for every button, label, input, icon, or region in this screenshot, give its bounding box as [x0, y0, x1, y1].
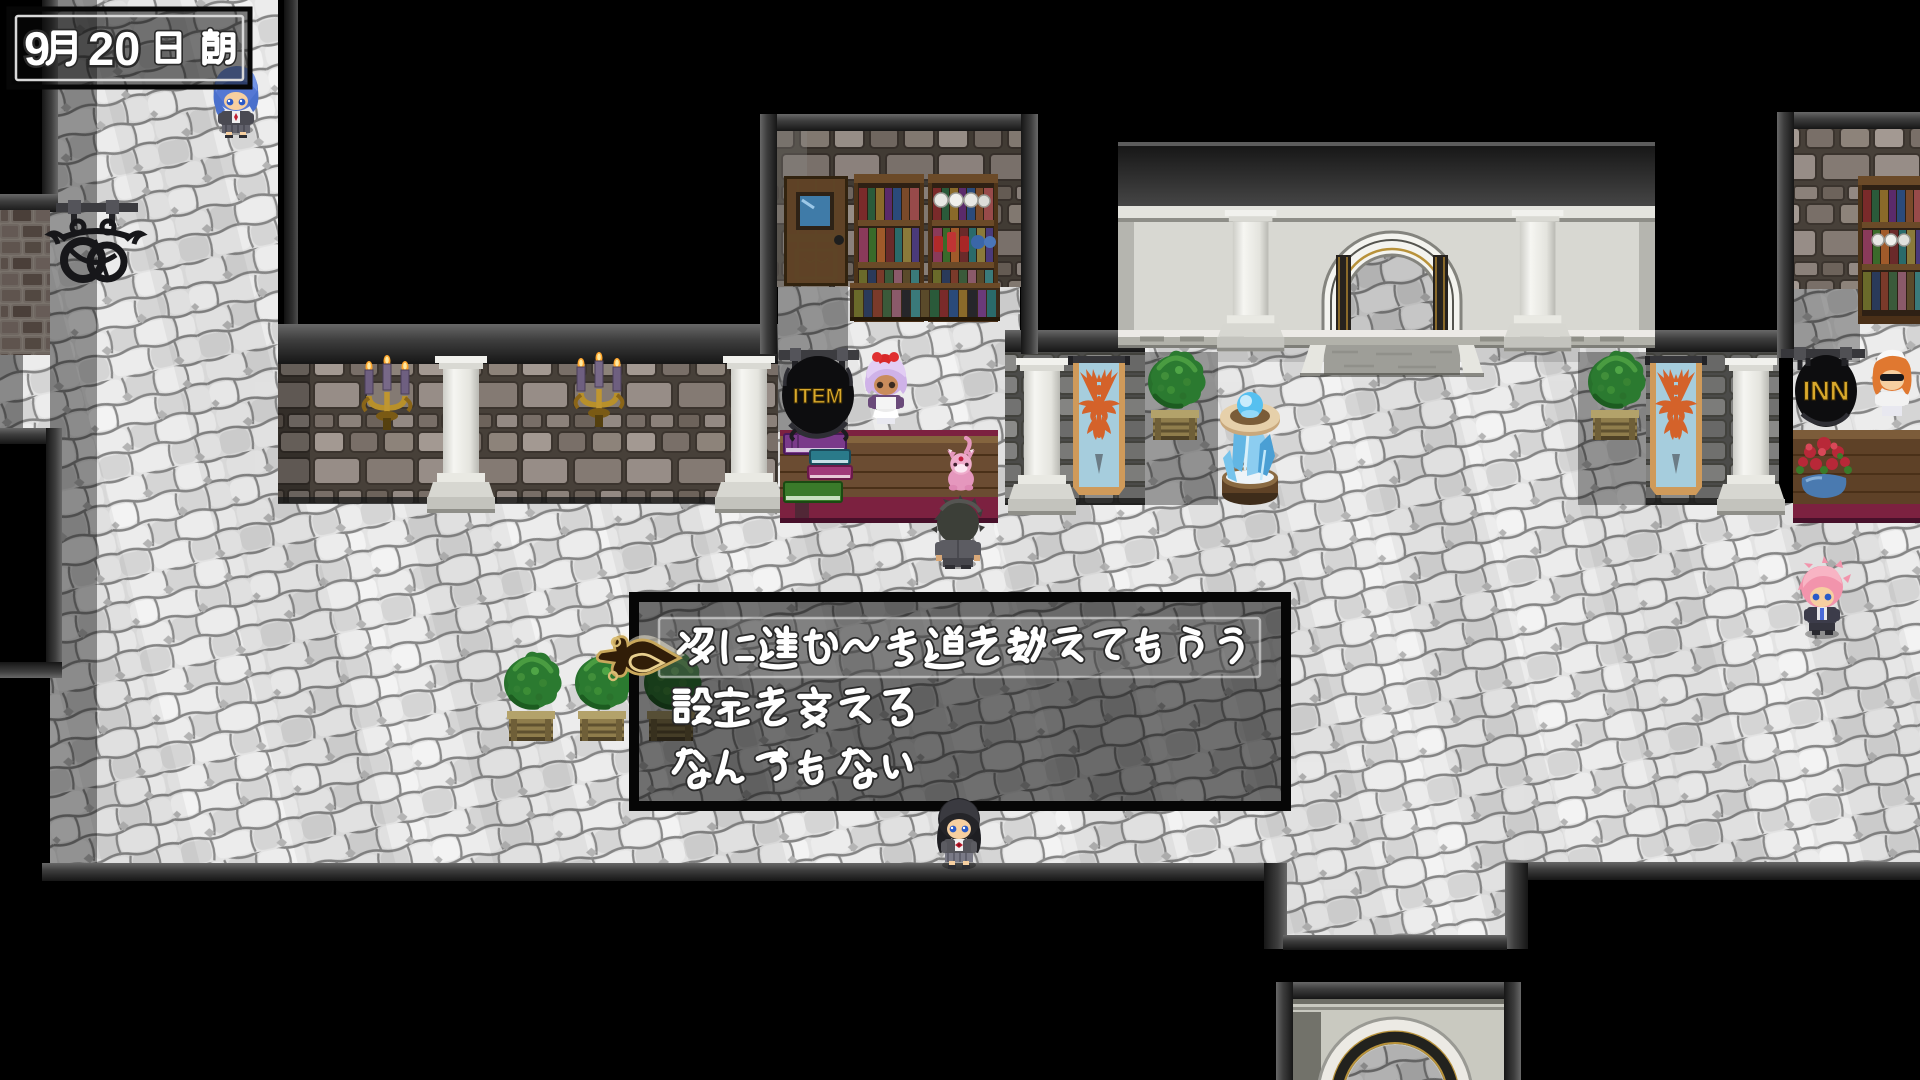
svg-text:INN: INN: [1803, 376, 1850, 406]
svg-text:ITEM: ITEM: [793, 385, 843, 408]
svg-text:20: 20: [88, 22, 140, 75]
svg-text:9: 9: [24, 22, 50, 75]
